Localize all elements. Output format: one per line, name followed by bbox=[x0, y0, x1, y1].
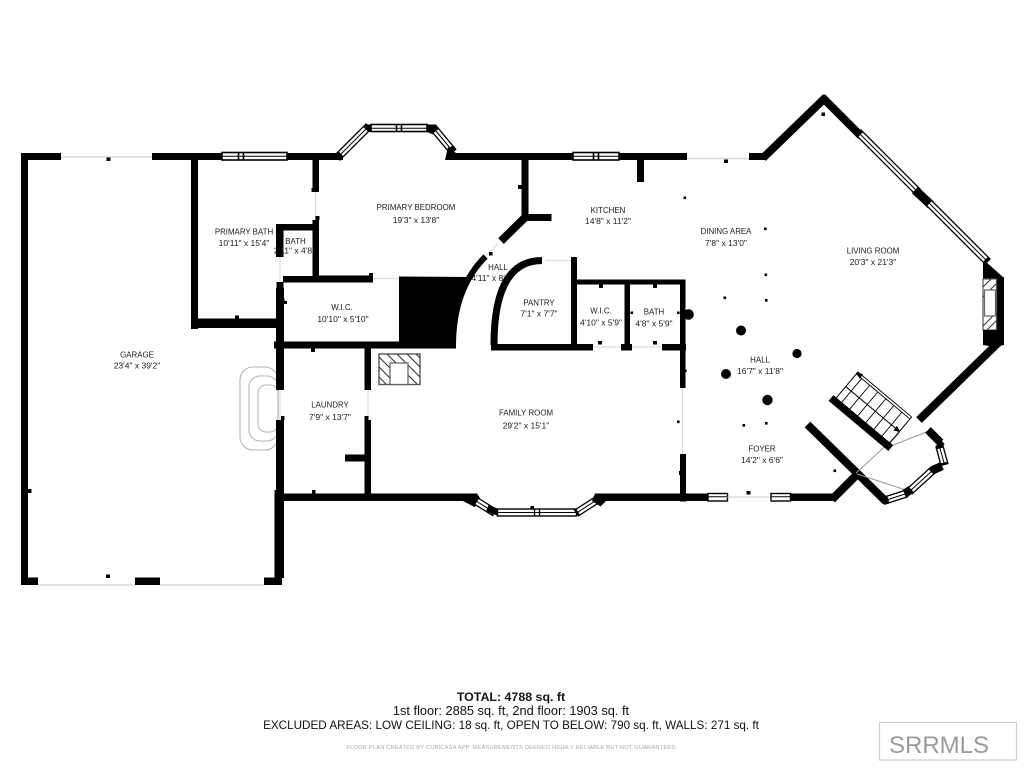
svg-text:14'8" x 11'2": 14'8" x 11'2" bbox=[585, 216, 631, 226]
svg-text:HALL: HALL bbox=[750, 356, 770, 365]
svg-text:14'2" x 6'6": 14'2" x 6'6" bbox=[741, 455, 783, 465]
svg-text:W.I.C.: W.I.C. bbox=[331, 303, 352, 312]
svg-text:KITCHEN: KITCHEN bbox=[591, 206, 626, 215]
svg-text:2'11" x 4'8": 2'11" x 4'8" bbox=[274, 246, 315, 256]
svg-text:4'8" x 5'9": 4'8" x 5'9" bbox=[635, 319, 672, 329]
svg-text:FLOOR PLAN CREATED BY CUBICASA: FLOOR PLAN CREATED BY CUBICASA APP. MEAS… bbox=[347, 745, 678, 751]
svg-text:23'4" x 39'2": 23'4" x 39'2" bbox=[114, 361, 161, 371]
svg-text:BATH: BATH bbox=[644, 308, 665, 317]
svg-text:16'7" x 11'8": 16'7" x 11'8" bbox=[737, 366, 783, 376]
svg-text:DINING AREA: DINING AREA bbox=[701, 227, 753, 236]
svg-text:10'11" x 15'4": 10'11" x 15'4" bbox=[219, 238, 270, 248]
svg-text:LAUNDRY: LAUNDRY bbox=[311, 401, 349, 410]
svg-text:PANTRY: PANTRY bbox=[523, 299, 555, 308]
svg-text:20'3" x 21'3": 20'3" x 21'3" bbox=[850, 257, 897, 267]
svg-text:7'8" x 13'0": 7'8" x 13'0" bbox=[705, 238, 747, 248]
svg-text:PRIMARY BEDROOM: PRIMARY BEDROOM bbox=[377, 203, 456, 212]
svg-text:GARAGE: GARAGE bbox=[120, 351, 154, 360]
svg-text:4'11" x 8'1": 4'11" x 8'1" bbox=[471, 273, 512, 283]
svg-text:10'10" x 5'10": 10'10" x 5'10" bbox=[317, 314, 368, 324]
svg-text:FAMILY ROOM: FAMILY ROOM bbox=[499, 409, 553, 418]
svg-text:EXCLUDED AREAS: LOW CEILING: 1: EXCLUDED AREAS: LOW CEILING: 18 sq. ft, … bbox=[263, 719, 760, 732]
svg-text:4'10" x 5'9": 4'10" x 5'9" bbox=[580, 318, 622, 328]
svg-text:SRRMLS: SRRMLS bbox=[889, 732, 989, 759]
svg-text:7'9" x 13'7": 7'9" x 13'7" bbox=[309, 412, 351, 422]
svg-text:19'3" x 13'8": 19'3" x 13'8" bbox=[393, 215, 440, 225]
svg-text:1st floor: 2885 sq. ft, 2nd fl: 1st floor: 2885 sq. ft, 2nd floor: 1903 … bbox=[393, 703, 630, 718]
svg-text:LIVING ROOM: LIVING ROOM bbox=[847, 247, 900, 256]
svg-text:HALL: HALL bbox=[488, 263, 508, 272]
svg-text:29'2" x 15'1": 29'2" x 15'1" bbox=[503, 421, 550, 431]
svg-text:FOYER: FOYER bbox=[748, 445, 775, 454]
svg-text:7'1" x 7'7": 7'1" x 7'7" bbox=[520, 309, 557, 319]
svg-text:TOTAL: 4788 sq. ft: TOTAL: 4788 sq. ft bbox=[457, 690, 565, 704]
svg-text:PRIMARY BATH: PRIMARY BATH bbox=[215, 228, 274, 237]
svg-text:W.I.C.: W.I.C. bbox=[590, 307, 611, 316]
